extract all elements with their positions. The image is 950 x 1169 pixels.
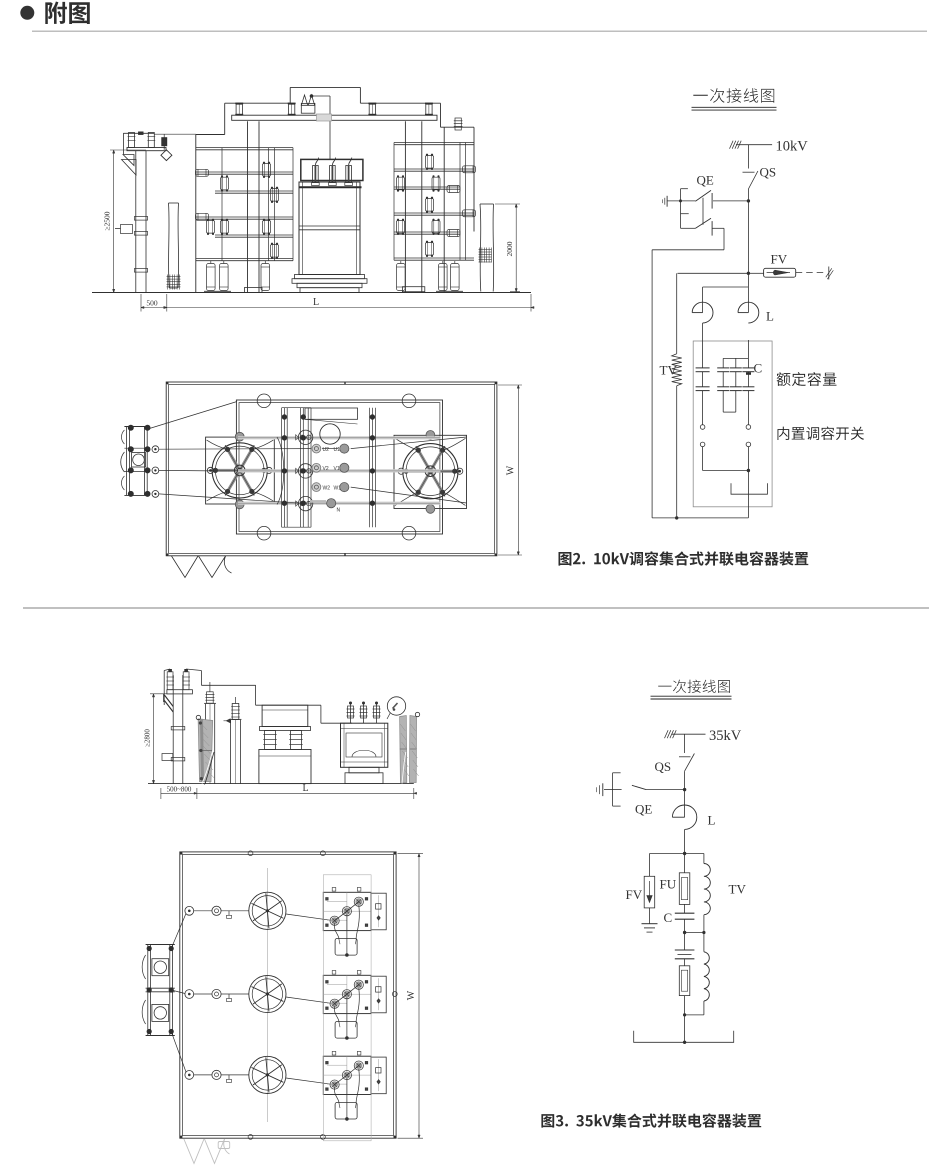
svg-text:≥2500: ≥2500 <box>103 211 112 230</box>
svg-text:C: C <box>754 361 763 376</box>
svg-text:W2: W2 <box>323 485 331 491</box>
svg-text:L: L <box>766 309 774 324</box>
svg-text:W1: W1 <box>334 485 342 491</box>
svg-text:2000: 2000 <box>505 241 514 256</box>
svg-text:35kV: 35kV <box>709 728 742 744</box>
svg-text:500~800: 500~800 <box>167 786 192 794</box>
svg-text:L: L <box>313 297 319 308</box>
svg-text:V2: V2 <box>323 466 329 472</box>
svg-text:QS: QS <box>760 165 777 180</box>
svg-text:QE: QE <box>697 173 714 188</box>
svg-text:10kV: 10kV <box>776 138 809 154</box>
svg-text:500: 500 <box>146 299 158 308</box>
svg-text:N: N <box>337 508 341 514</box>
svg-text:TV: TV <box>729 882 747 897</box>
svg-text:QE: QE <box>635 802 652 817</box>
svg-text:U1: U1 <box>334 447 341 453</box>
svg-text:U2: U2 <box>323 447 330 453</box>
svg-text:C: C <box>664 910 673 925</box>
svg-text:≥2800: ≥2800 <box>143 729 151 747</box>
svg-text:FV: FV <box>771 252 788 267</box>
svg-text:FU: FU <box>660 877 677 892</box>
svg-text:V1: V1 <box>334 466 340 472</box>
svg-text:FV: FV <box>626 887 643 902</box>
svg-text:QS: QS <box>655 759 672 774</box>
svg-text:L: L <box>708 813 716 828</box>
svg-text:L: L <box>302 783 308 794</box>
svg-text:TV: TV <box>660 363 678 378</box>
svg-text:W: W <box>506 465 517 475</box>
svg-text:W: W <box>406 990 417 1000</box>
